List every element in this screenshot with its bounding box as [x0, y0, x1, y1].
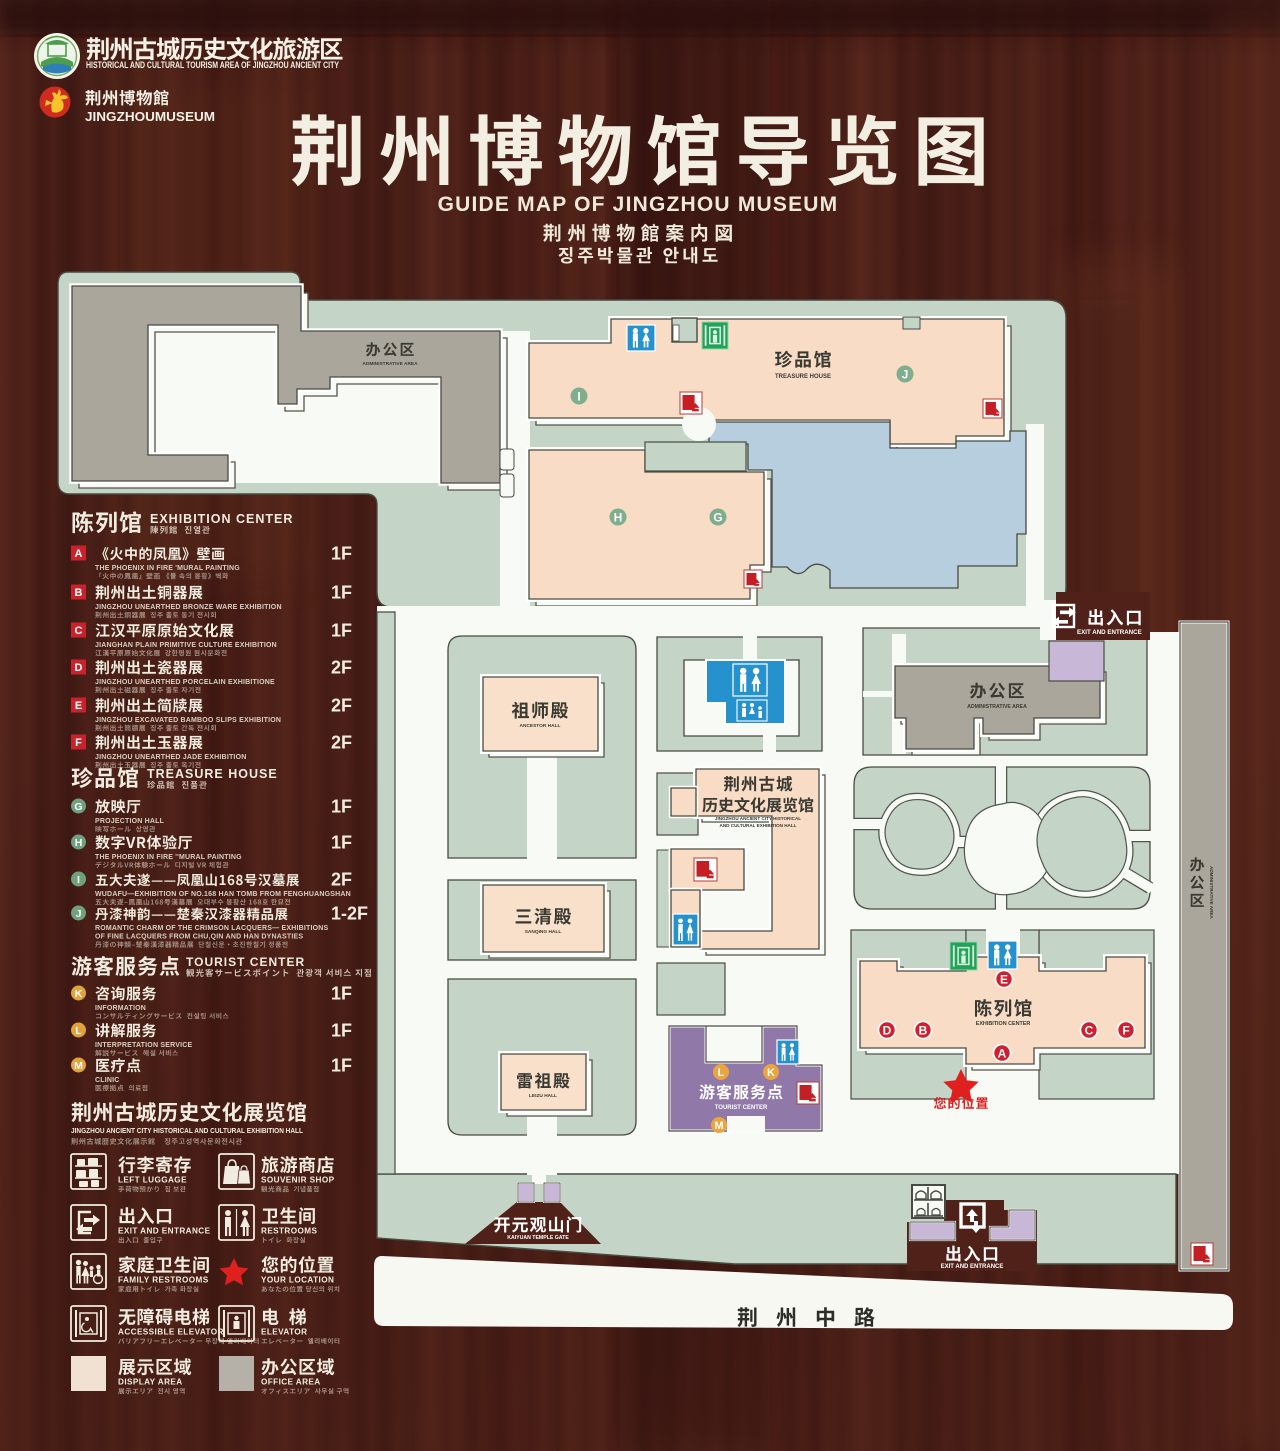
svg-text:TOURIST CENTER: TOURIST CENTER: [186, 955, 305, 969]
svg-text:A: A: [998, 1046, 1007, 1060]
svg-text:EXHIBITION CENTER: EXHIBITION CENTER: [150, 512, 293, 526]
svg-text:E: E: [1000, 972, 1008, 986]
svg-text:AND CULTURAL EXHIBITION HALL: AND CULTURAL EXHIBITION HALL: [720, 823, 797, 828]
svg-text:JINGZHOU ANCIENT CITY HISTORIC: JINGZHOU ANCIENT CITY HISTORICAL: [715, 816, 801, 821]
svg-text:A: A: [75, 548, 83, 560]
svg-text:INFORMATION: INFORMATION: [95, 1005, 146, 1012]
svg-text:I: I: [577, 389, 580, 403]
svg-text:G: G: [74, 801, 82, 813]
svg-text:JINGZHOU EXCAVATED BAMBOO SLIP: JINGZHOU EXCAVATED BAMBOO SLIPS EXHIBITI…: [95, 717, 281, 724]
svg-text:LEFT LUGGAGE: LEFT LUGGAGE: [118, 1176, 187, 1185]
svg-text:JINGZHOUMUSEUM: JINGZHOUMUSEUM: [85, 109, 215, 124]
svg-text:K: K: [767, 1067, 775, 1079]
svg-text:TOURIST CENTER: TOURIST CENTER: [715, 1105, 768, 1111]
svg-text:SOUVENIR SHOP: SOUVENIR SHOP: [261, 1176, 335, 1185]
svg-text:I: I: [77, 874, 80, 886]
svg-text:2F: 2F: [331, 696, 352, 716]
svg-text:H: H: [75, 837, 83, 849]
svg-text:B: B: [75, 587, 83, 599]
svg-text:DISPLAY AREA: DISPLAY AREA: [118, 1378, 183, 1387]
svg-text:JINGZHOU UNEARTHED BRONZE WARE: JINGZHOU UNEARTHED BRONZE WARE EXHIBITIO…: [95, 604, 282, 611]
svg-text:C: C: [1085, 1023, 1094, 1037]
svg-text:F: F: [1122, 1023, 1129, 1037]
svg-text:1F: 1F: [331, 797, 352, 817]
svg-text:G: G: [713, 510, 722, 524]
svg-text:RESTROOMS: RESTROOMS: [261, 1227, 318, 1236]
svg-text:OFFICE AREA: OFFICE AREA: [261, 1378, 321, 1387]
svg-text:2F: 2F: [331, 870, 352, 890]
svg-text:1F: 1F: [331, 833, 352, 853]
svg-text:C: C: [75, 625, 83, 637]
svg-text:2F: 2F: [331, 658, 352, 678]
svg-text:2F: 2F: [331, 733, 352, 753]
svg-text:ADMINISTRATIVE AREA: ADMINISTRATIVE AREA: [362, 361, 418, 367]
svg-text:SANQING HALL: SANQING HALL: [525, 929, 562, 935]
svg-text:1F: 1F: [331, 1021, 352, 1041]
svg-text:EXIT AND ENTRANCE: EXIT AND ENTRANCE: [118, 1227, 211, 1236]
svg-text:ACCESSIBLE ELEVATOR: ACCESSIBLE ELEVATOR: [118, 1328, 224, 1337]
svg-text:EXIT AND ENTRANCE: EXIT AND ENTRANCE: [941, 1264, 1004, 1270]
svg-text:TREASURE HOUSE: TREASURE HOUSE: [147, 767, 278, 781]
svg-text:M: M: [714, 1120, 723, 1132]
svg-text:D: D: [75, 662, 83, 674]
svg-text:K: K: [75, 988, 83, 1000]
svg-text:F: F: [75, 737, 82, 749]
svg-text:THE PHOENIX IN FIRE ''MURAL PA: THE PHOENIX IN FIRE ''MURAL PAINTING: [95, 854, 242, 861]
svg-text:FAMILY RESTROOMS: FAMILY RESTROOMS: [118, 1276, 209, 1285]
svg-text:INTERPRETATION SERVICE: INTERPRETATION SERVICE: [95, 1042, 192, 1049]
svg-text:JINGZHOU ANCIENT CITY HISTORIC: JINGZHOU ANCIENT CITY HISTORICAL AND CUL…: [71, 1128, 304, 1135]
svg-text:D: D: [883, 1023, 892, 1037]
svg-text:1F: 1F: [331, 621, 352, 641]
svg-text:J: J: [902, 367, 909, 381]
svg-text:WUDAFU—EXHIBITION OF NO.168 HA: WUDAFU—EXHIBITION OF NO.168 HAN TOMB FRO…: [95, 891, 351, 898]
svg-text:ADMINISTRATIVE AREA: ADMINISTRATIVE AREA: [1209, 866, 1214, 920]
svg-text:OF FINE LACQUERS FROM CHU,QIN: OF FINE LACQUERS FROM CHU,QIN AND HAN DY…: [95, 934, 303, 941]
svg-text:GUIDE MAP OF JINGZHOU MUSEUM: GUIDE MAP OF JINGZHOU MUSEUM: [438, 193, 839, 216]
svg-text:CLINIC: CLINIC: [95, 1077, 120, 1084]
svg-text:HISTORICAL AND CULTURAL TOURIS: HISTORICAL AND CULTURAL TOURISM AREA OF …: [86, 60, 339, 70]
svg-text:1F: 1F: [331, 583, 352, 603]
svg-text:THE PHOENIX IN FIRE 'MURAL PAI: THE PHOENIX IN FIRE 'MURAL PAINTING: [95, 565, 240, 572]
svg-text:H: H: [614, 510, 623, 524]
svg-text:M: M: [74, 1060, 83, 1072]
svg-text:KAIYUAN TEMPLE GATE: KAIYUAN TEMPLE GATE: [507, 1235, 569, 1241]
svg-text:ANCESTOR HALL: ANCESTOR HALL: [520, 723, 561, 729]
svg-text:1F: 1F: [331, 544, 352, 564]
svg-text:JIANGHAN PLAIN PRIMITIVE CULTU: JIANGHAN PLAIN PRIMITIVE CULTURE EXHIBIT…: [95, 642, 277, 649]
svg-text:1F: 1F: [331, 984, 352, 1004]
svg-text:J: J: [76, 908, 82, 920]
svg-text:TREASURE HOUSE: TREASURE HOUSE: [775, 374, 831, 380]
svg-text:E: E: [75, 700, 82, 712]
svg-text:L: L: [75, 1025, 82, 1037]
svg-text:YOUR LOCATION: YOUR LOCATION: [261, 1276, 334, 1285]
svg-text:LEIZU HALL: LEIZU HALL: [529, 1093, 557, 1099]
svg-text:PROJECTION HALL: PROJECTION HALL: [95, 818, 165, 825]
svg-text:JINGZHOU UNEARTHED PORCELAIN E: JINGZHOU UNEARTHED PORCELAIN EXHIBITIONE: [95, 679, 275, 686]
svg-text:B: B: [919, 1023, 928, 1037]
svg-text:ROMANTIC CHARM OF THE CRIMSON: ROMANTIC CHARM OF THE CRIMSON LACQUERS— …: [95, 925, 329, 932]
svg-text:EXIT AND ENTRANCE: EXIT AND ENTRANCE: [1077, 629, 1142, 636]
svg-text:ADMINISTRATIVE AREA: ADMINISTRATIVE AREA: [967, 704, 1027, 710]
svg-text:ELEVATOR: ELEVATOR: [261, 1328, 307, 1337]
svg-text:1F: 1F: [331, 1056, 352, 1076]
svg-text:L: L: [718, 1067, 725, 1079]
svg-text:JINGZHOU UNEARTHED JADE EXHIBI: JINGZHOU UNEARTHED JADE EXHIBITION: [95, 754, 246, 761]
svg-text:EXHIBITION CENTER: EXHIBITION CENTER: [976, 1021, 1031, 1027]
svg-text:1-2F: 1-2F: [331, 904, 368, 924]
